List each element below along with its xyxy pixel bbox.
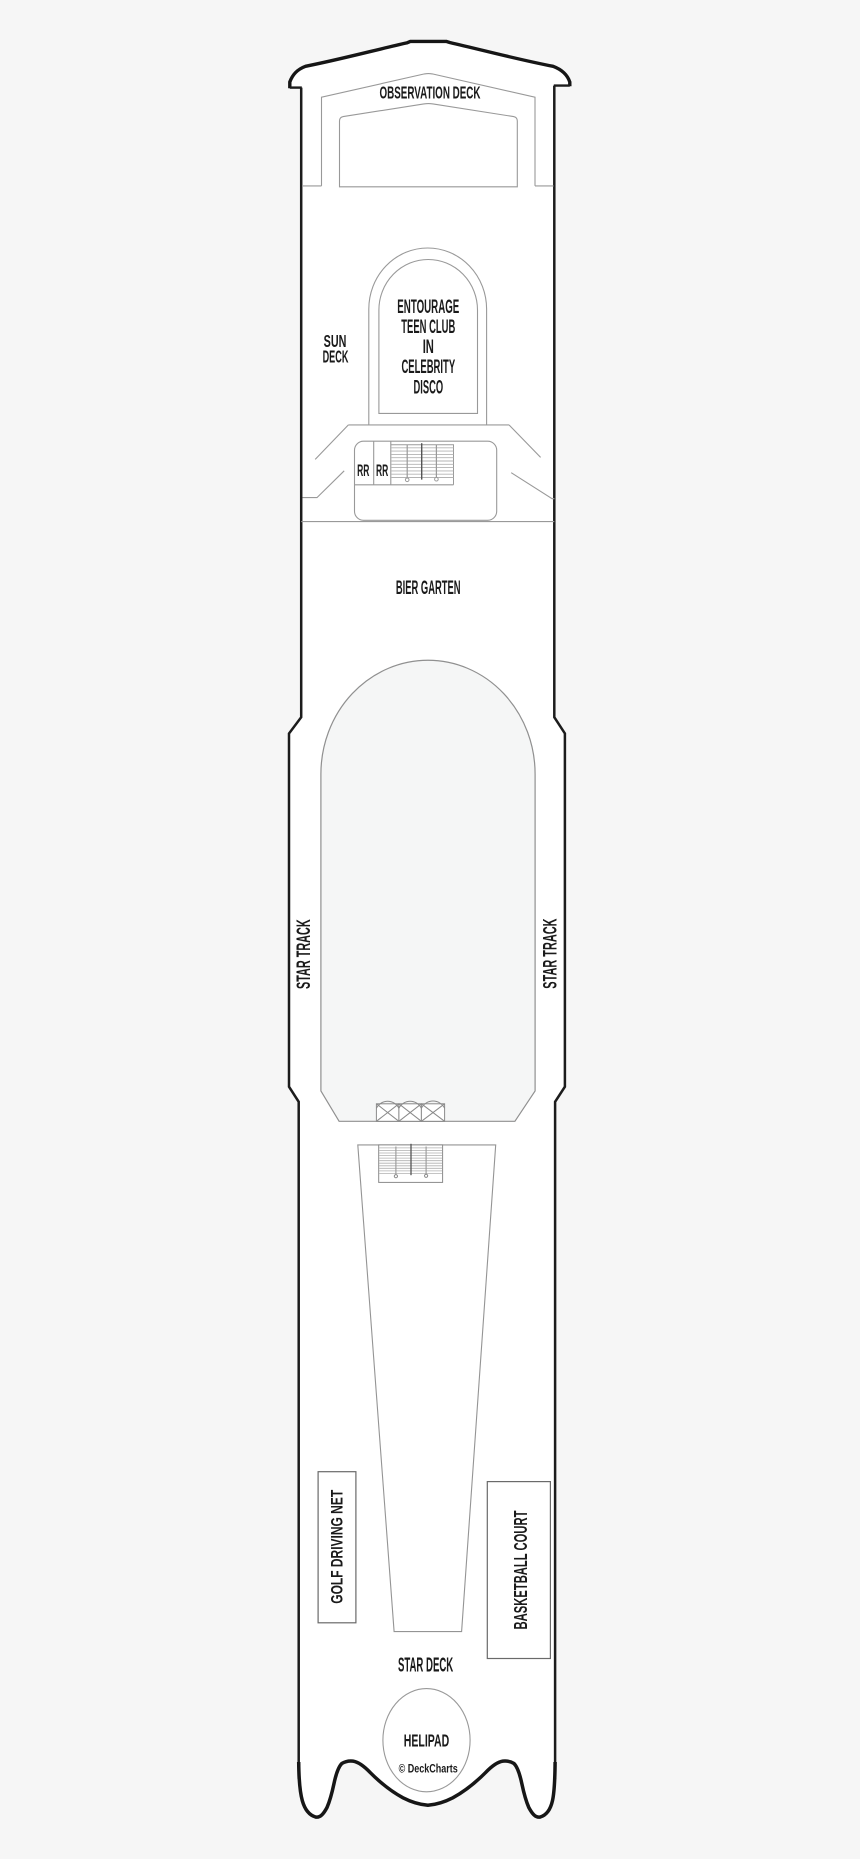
svg-text:BIER GARTEN: BIER GARTEN (396, 577, 461, 599)
svg-text:RR: RR (357, 462, 369, 480)
svg-text:ENTOURAGE: ENTOURAGE (397, 297, 459, 318)
svg-text:STAR TRACK: STAR TRACK (540, 918, 561, 988)
svg-text:OBSERVATION DECK: OBSERVATION DECK (380, 82, 481, 102)
svg-text:HELIPAD: HELIPAD (404, 1730, 449, 1750)
svg-text:CELEBRITY: CELEBRITY (401, 357, 455, 378)
svg-text:STAR TRACK: STAR TRACK (294, 919, 315, 989)
svg-text:RR: RR (376, 462, 388, 480)
svg-text:BASKETBALL COURT: BASKETBALL COURT (510, 1510, 531, 1629)
svg-text:IN: IN (423, 337, 434, 358)
svg-text:© DeckCharts: © DeckCharts (399, 1763, 458, 1775)
svg-text:TEEN CLUB: TEEN CLUB (401, 317, 455, 338)
svg-text:DISCO: DISCO (414, 377, 444, 398)
svg-text:STAR DECK: STAR DECK (398, 1655, 454, 1677)
svg-text:GOLF DRIVING NET: GOLF DRIVING NET (328, 1489, 347, 1603)
svg-text:DECK: DECK (323, 347, 349, 367)
